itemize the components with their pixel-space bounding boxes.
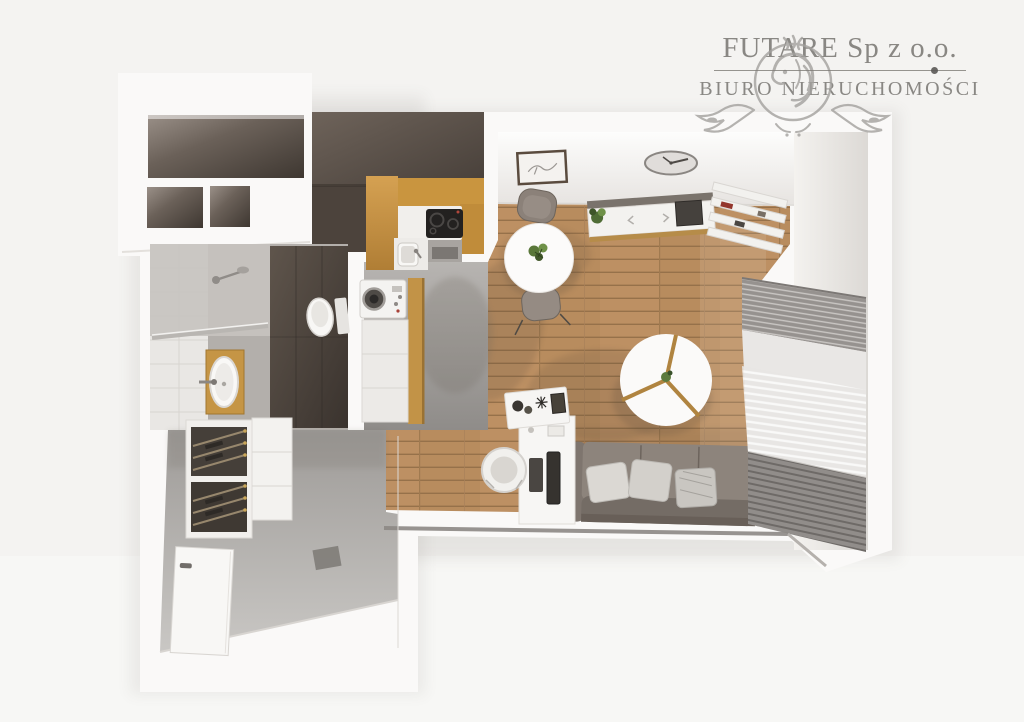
floor-plan-screenshot: FUTARE Sp z o.o. BIURO NIERUCHOMOŚCI [0,0,1024,722]
wall-clock [645,152,697,175]
sofa-pillow [675,468,717,508]
kitchen-sink [394,238,428,270]
bathroom [150,244,350,430]
kitchen-lower-cabinet [362,320,408,422]
induction-cooktop [426,209,463,238]
bathroom-accent-wall [270,246,348,428]
side-table [504,387,569,429]
sofa-pillow [628,459,673,502]
bathroom-vanity [199,350,244,414]
toilet [305,295,350,337]
shower [150,244,270,338]
laptop [529,458,543,492]
sofa [567,441,771,526]
washing-machine [360,280,406,318]
hallway-cabinet [252,418,292,520]
desk [519,416,575,524]
monitor [547,452,560,504]
door-handle [180,563,192,569]
shoe-rack [186,420,252,538]
entry-door [170,547,233,656]
desk-chair [482,448,526,492]
sofa-pillow [586,462,631,504]
picture-frame [517,151,567,184]
floor-plan-render [0,0,1024,722]
tv-on-sideboard [675,200,703,226]
oak-side-panel [408,278,424,424]
sideboard [587,192,716,242]
